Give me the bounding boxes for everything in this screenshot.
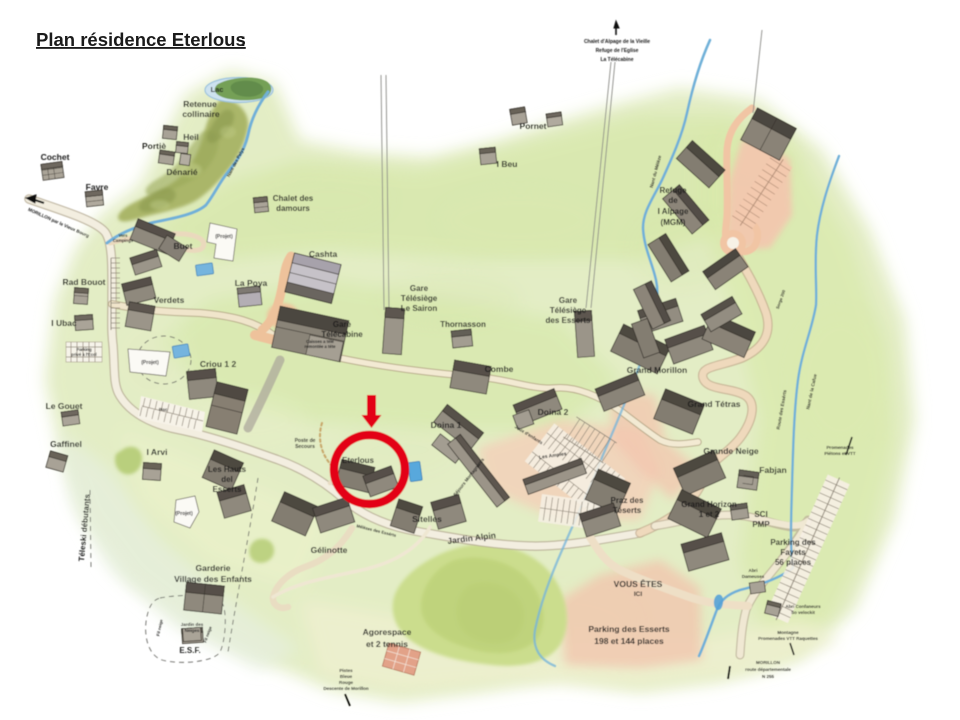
svg-text:198 et 144 places: 198 et 144 places <box>594 636 664 646</box>
svg-text:So velockit: So velockit <box>791 610 815 615</box>
svg-text:collinaire: collinaire <box>182 109 220 119</box>
svg-text:Secours: Secours <box>295 444 315 450</box>
svg-text:N 255: N 255 <box>762 674 775 679</box>
svg-text:Criou 1 2: Criou 1 2 <box>200 359 237 369</box>
svg-text:Refuge: Refuge <box>659 186 687 195</box>
svg-text:Télésiège: Télésiège <box>401 294 438 303</box>
svg-text:PMP: PMP <box>752 520 770 529</box>
svg-text:Promenades: Promenades <box>826 445 854 450</box>
svg-text:Gare: Gare <box>559 296 578 305</box>
svg-text:I Ubac: I Ubac <box>51 318 77 328</box>
svg-text:Fabjan: Fabjan <box>759 465 786 475</box>
svg-text:Favre: Favre <box>86 182 109 192</box>
svg-text:Piétons et VTT: Piétons et VTT <box>824 451 856 456</box>
svg-text:I Alpage: I Alpage <box>658 207 689 216</box>
svg-text:Doina 2: Doina 2 <box>538 407 569 417</box>
svg-text:Refuge de l'Eglise: Refuge de l'Eglise <box>596 48 639 54</box>
svg-text:I Arvi: I Arvi <box>147 447 168 457</box>
svg-text:Neiges: Neiges <box>185 628 200 633</box>
svg-text:Doina 1: Doina 1 <box>431 420 462 430</box>
svg-text:Télésiège: Télésiège <box>550 306 587 315</box>
svg-text:et 2 tennis: et 2 tennis <box>366 639 408 649</box>
svg-text:Rad Bouot: Rad Bouot <box>63 277 106 287</box>
svg-text:Verdets: Verdets <box>154 295 185 305</box>
svg-text:Dameuses: Dameuses <box>742 574 765 579</box>
svg-text:Eterlous: Eterlous <box>342 456 375 465</box>
svg-text:Le Sairon: Le Sairon <box>401 304 438 313</box>
svg-text:La Télécabine: La Télécabine <box>600 57 633 63</box>
svg-text:I Beu: I Beu <box>497 159 518 169</box>
svg-text:Parking des Esserts: Parking des Esserts <box>588 624 670 634</box>
svg-text:Lac: Lac <box>211 85 224 94</box>
svg-text:VOUS ÊTES: VOUS ÊTES <box>614 578 663 589</box>
svg-text:Rouge: Rouge <box>339 680 353 685</box>
svg-text:Les Hauts: Les Hauts <box>208 465 247 474</box>
svg-text:remontée a téte: remontée a téte <box>305 344 337 349</box>
svg-text:Abri Confaneurs: Abri Confaneurs <box>785 604 821 609</box>
svg-text:ICI: ICI <box>634 591 643 598</box>
svg-text:Esserts: Esserts <box>213 485 242 494</box>
svg-text:Chalet des: Chalet des <box>273 194 314 203</box>
svg-text:Campings: Campings <box>113 238 134 243</box>
svg-text:Bleue: Bleue <box>340 674 353 679</box>
svg-text:Montagne: Montagne <box>777 630 799 635</box>
svg-text:Gélinotte: Gélinotte <box>311 545 348 555</box>
svg-text:Chalet d'Alpage de la Vieille: Chalet d'Alpage de la Vieille <box>584 39 650 45</box>
svg-text:Buet: Buet <box>174 241 193 251</box>
svg-text:Praz des: Praz des <box>611 496 644 505</box>
svg-text:Pisc: Pisc <box>159 407 168 412</box>
svg-text::: : <box>240 29 246 50</box>
svg-text:Gare: Gare <box>333 320 352 329</box>
svg-text:Gare: Gare <box>410 284 429 293</box>
svg-text:E.S.F.: E.S.F. <box>179 646 200 655</box>
svg-text:1 et 2: 1 et 2 <box>699 510 720 519</box>
svg-text:(Projet): (Projet) <box>141 360 159 366</box>
svg-text:Cashta: Cashta <box>309 249 338 259</box>
svg-text:Dénarié: Dénarié <box>166 167 197 177</box>
svg-text:MORILLON: MORILLON <box>756 660 780 665</box>
svg-text:damours: damours <box>276 204 310 213</box>
svg-text:Le Gouet: Le Gouet <box>46 401 83 411</box>
svg-text:Télécabine: Télécabine <box>321 330 363 339</box>
svg-text:Jardin des: Jardin des <box>181 622 204 627</box>
svg-text:(Projet): (Projet) <box>215 234 233 240</box>
svg-text:Village des Enfants: Village des Enfants <box>174 574 252 584</box>
svg-text:Heil: Heil <box>183 132 199 142</box>
svg-text:Promenades VTT Raquettes: Promenades VTT Raquettes <box>758 636 818 641</box>
svg-text:Gaffinel: Gaffinel <box>50 439 82 449</box>
svg-text:Grande Neige: Grande Neige <box>703 446 759 456</box>
svg-text:Abri: Abri <box>749 568 758 573</box>
svg-text:route départementale: route départementale <box>745 667 791 672</box>
svg-text:Portiè: Portiè <box>142 141 166 151</box>
svg-text:Agorespace: Agorespace <box>363 627 412 637</box>
svg-text:Cochet: Cochet <box>41 152 70 162</box>
svg-text:des Esserts: des Esserts <box>546 316 591 325</box>
svg-text:Plan résidence Eterlous: Plan résidence Eterlous <box>36 29 246 50</box>
svg-text:Grand Morillon: Grand Morillon <box>627 365 687 375</box>
svg-text:(Projet): (Projet) <box>175 511 193 517</box>
svg-text:Sitelles: Sitelles <box>412 514 442 524</box>
svg-text:Parking des: Parking des <box>770 538 816 547</box>
svg-text:56 places: 56 places <box>775 558 812 567</box>
svg-text:Téserts: Téserts <box>613 506 642 515</box>
svg-text:del: del <box>221 475 233 484</box>
svg-text:Pornet: Pornet <box>520 121 547 131</box>
svg-text:Combe: Combe <box>485 364 514 374</box>
svg-text:Grand Tétras: Grand Tétras <box>688 399 741 409</box>
svg-text:SCI: SCI <box>754 510 767 519</box>
svg-text:Garderie: Garderie <box>196 563 231 573</box>
svg-text:(MGM): (MGM) <box>661 218 686 227</box>
svg-text:Retenue: Retenue <box>183 99 217 109</box>
svg-text:Pistes: Pistes <box>339 668 353 673</box>
svg-text:Descente de Morillon: Descente de Morillon <box>323 686 369 691</box>
svg-text:La Poya: La Poya <box>235 278 268 288</box>
svg-text:privé à l'Ecol: privé à l'Ecol <box>71 352 97 357</box>
svg-text:Thornasson: Thornasson <box>440 320 486 329</box>
svg-text:Grand Horizon: Grand Horizon <box>681 500 737 509</box>
svg-text:de: de <box>668 196 678 205</box>
svg-text:Fayets: Fayets <box>780 548 806 557</box>
